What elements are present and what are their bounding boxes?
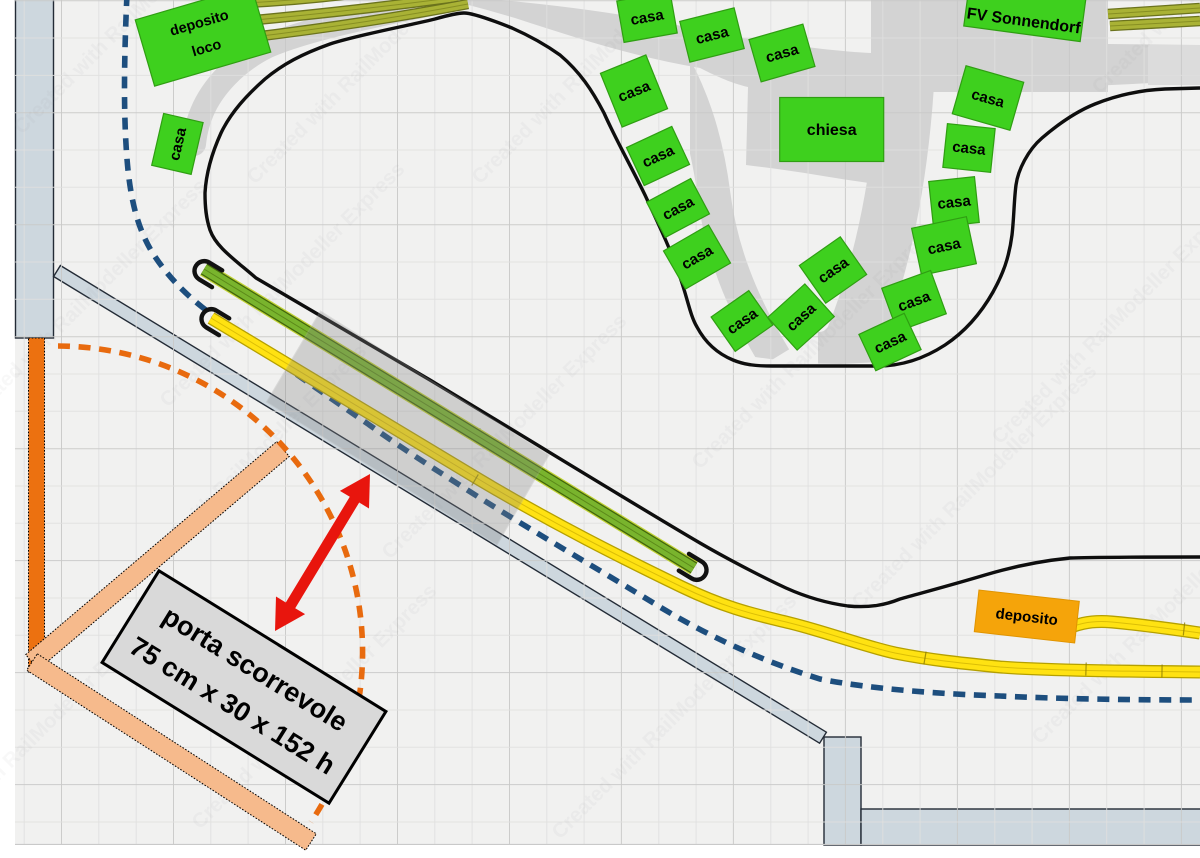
svg-text:casa: casa	[951, 138, 987, 158]
svg-text:casa: casa	[937, 192, 973, 212]
svg-text:chiesa: chiesa	[807, 122, 857, 139]
